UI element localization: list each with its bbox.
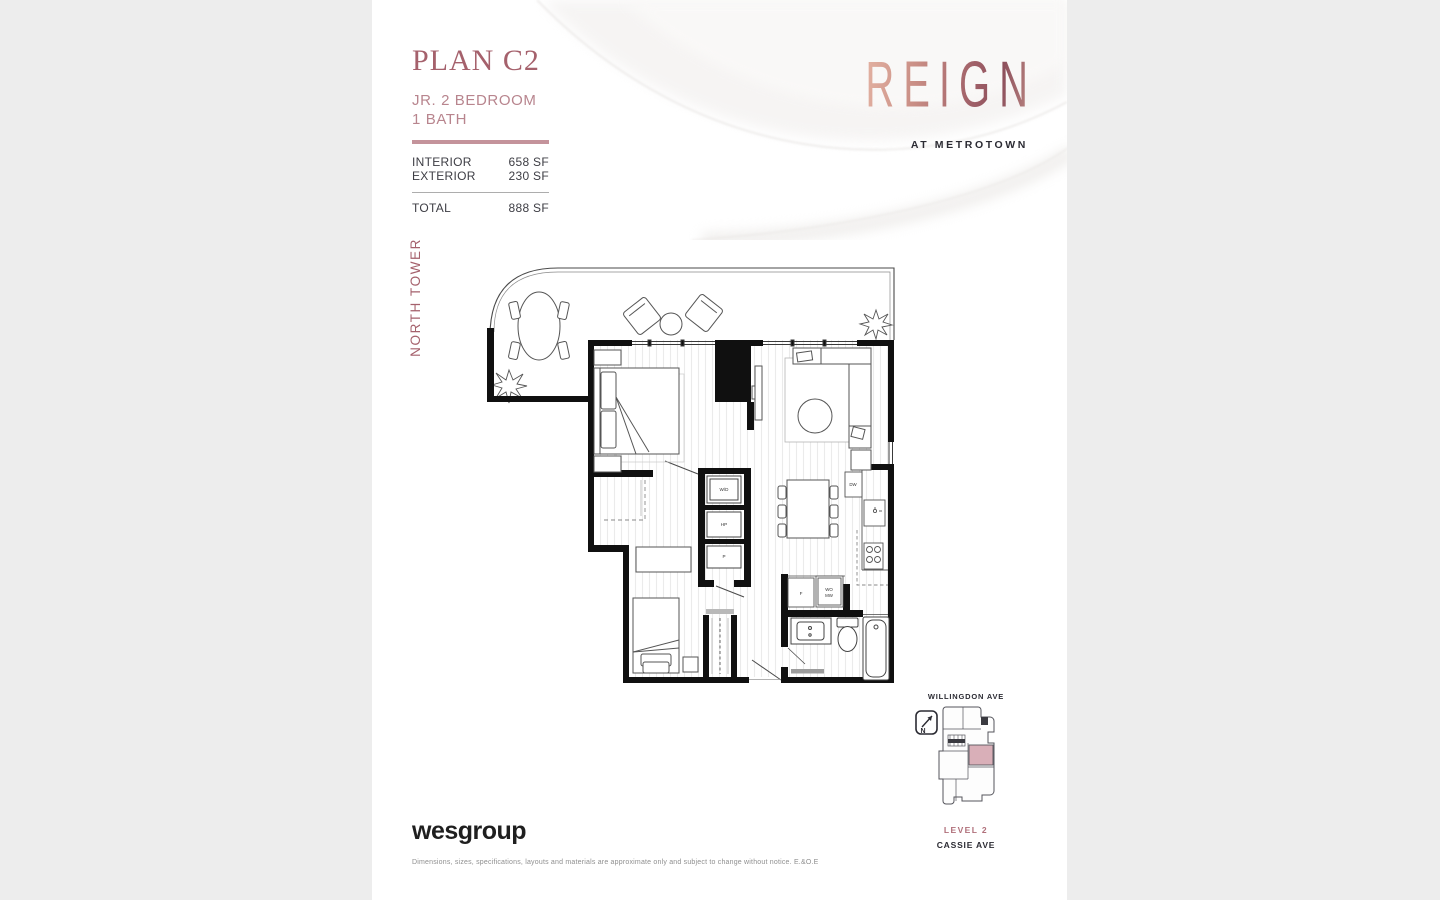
stat-value: 230 SF [509, 169, 550, 183]
wesgroup-logo: wesgroup [412, 817, 818, 846]
side-table [851, 450, 871, 470]
master-bed [594, 368, 684, 462]
divider-rule [412, 192, 549, 193]
dishwasher-label: DW [849, 482, 857, 487]
street-label-bottom: CASSIE AVE [898, 840, 1034, 850]
heat-pump-label: HP [721, 522, 727, 527]
plan-subtitle-bath: 1 BATH [412, 110, 612, 129]
patio-dining-set [508, 292, 570, 360]
stat-label: EXTERIOR [412, 169, 476, 183]
area-stats: INTERIOR 658 SF EXTERIOR 230 SF TOTAL 88… [412, 155, 549, 215]
building-footprint [939, 707, 994, 804]
footer: wesgroup Dimensions, sizes, specificatio… [412, 817, 818, 866]
stat-row-interior: INTERIOR 658 SF [412, 155, 549, 169]
coffee-table [798, 399, 832, 433]
washer-dryer-label: W/D [720, 487, 730, 492]
microwave-label: MW [825, 593, 834, 598]
level-label: LEVEL 2 [898, 825, 1034, 835]
reign-logo: REIGN [865, 50, 1037, 123]
north-label: N [920, 728, 925, 735]
plan-header: PLAN C2 JR. 2 BEDROOM 1 BATH INTERIOR 65… [412, 44, 612, 215]
page-title: PLAN C2 [412, 44, 612, 78]
stat-row-exterior: EXTERIOR 230 SF [412, 169, 549, 183]
stat-value: 658 SF [509, 155, 550, 169]
stat-label: INTERIOR [412, 155, 472, 169]
accent-rule [412, 140, 549, 144]
wall-oven-label: WO [825, 587, 833, 592]
dining-set [778, 480, 838, 538]
stat-label: TOTAL [412, 201, 451, 215]
patio-lounge-chairs [622, 293, 723, 335]
stat-value: 888 SF [509, 201, 550, 215]
stat-row-total: TOTAL 888 SF [412, 201, 549, 215]
north-arrow-icon: N [916, 711, 937, 735]
plan-subtitle-bedrooms: JR. 2 BEDROOM [412, 91, 612, 110]
floorplan: W/D HP P [485, 258, 897, 692]
brochure-page: PLAN C2 JR. 2 BEDROOM 1 BATH INTERIOR 65… [372, 0, 1067, 900]
brand-block: REIGN AT METROTOWN [808, 50, 1028, 151]
highlighted-unit [969, 745, 993, 765]
street-label-top: WILLINGDON AVE [898, 692, 1034, 701]
brand-tagline: AT METROTOWN [808, 139, 1028, 151]
disclaimer-text: Dimensions, sizes, specifications, layou… [412, 859, 818, 866]
key-map-drawing: N [898, 705, 1034, 817]
fridge-label: F [800, 591, 803, 596]
key-map: WILLINGDON AVE N [898, 692, 1034, 850]
tower-label: NORTH TOWER [408, 238, 423, 357]
pantry-label: P [722, 554, 725, 559]
